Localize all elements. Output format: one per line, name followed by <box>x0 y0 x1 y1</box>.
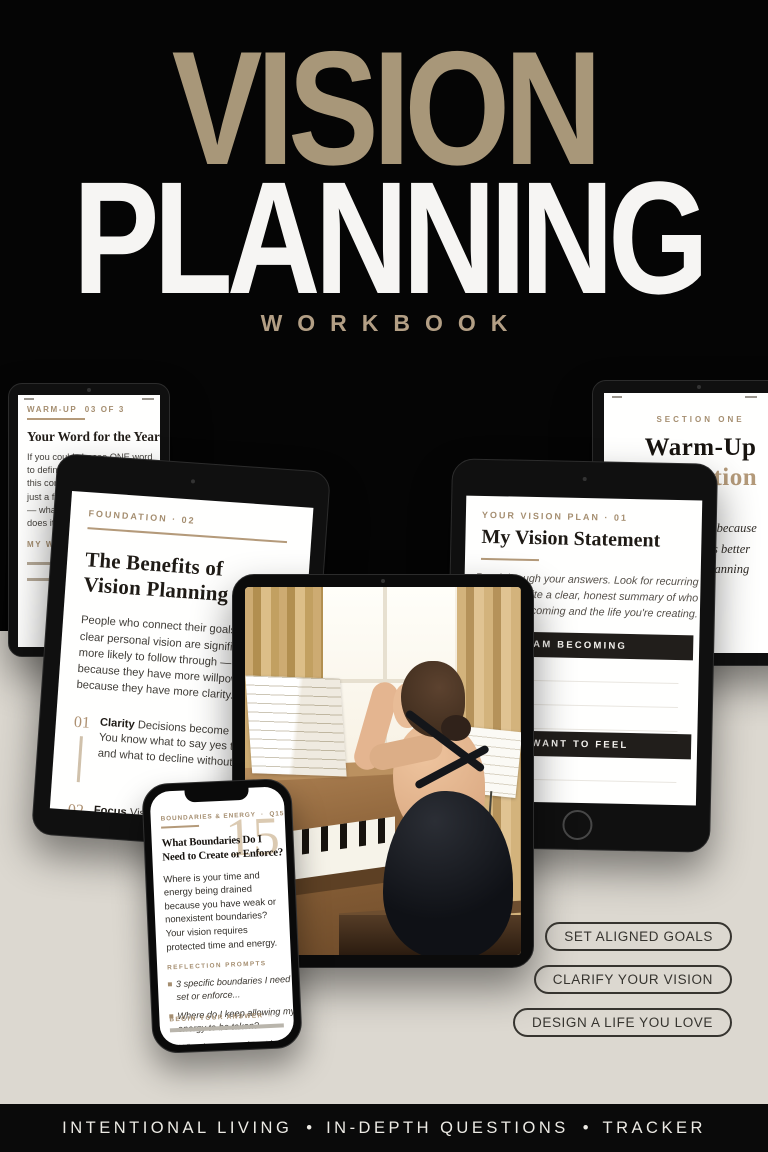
footer-segment: TRACKER <box>603 1119 706 1138</box>
bullet-separator: • <box>583 1119 589 1138</box>
camera-dot-icon <box>191 479 195 483</box>
status-bar <box>142 398 154 400</box>
eyebrow-underline <box>161 825 199 828</box>
prompt-text: What happens when I hold these boundarie… <box>178 1037 294 1046</box>
vision-heading: My Vision Statement <box>481 526 685 553</box>
section-eyebrow: SECTION ONE <box>604 415 768 424</box>
status-bar <box>24 398 34 400</box>
bullet-separator: • <box>306 1119 312 1138</box>
subtitle-workbook: WORKBOOK <box>0 310 768 337</box>
footer-segment: IN-DEPTH QUESTIONS <box>326 1119 569 1138</box>
phone-screen: 15 BOUNDARIES & ENERGY · Q15 OF 20 What … <box>150 786 295 1046</box>
photo-sheet-music <box>245 675 346 776</box>
square-bullet-icon <box>168 983 172 987</box>
camera-dot-icon <box>87 388 91 392</box>
footer-bar: INTENTIONAL LIVING • IN-DEPTH QUESTIONS … <box>0 1104 768 1152</box>
prompt-item: What happens when I hold these boundarie… <box>170 1037 287 1045</box>
vision-eyebrow: YOUR VISION PLAN · 01 <box>482 510 686 524</box>
title-planning: PLANNING <box>73 158 695 318</box>
camera-dot-icon <box>583 477 587 481</box>
benefit-lead: Clarity <box>100 716 136 730</box>
home-button <box>562 810 593 841</box>
reflection-prompts-label: REFLECTION PROMPTS <box>167 960 283 972</box>
status-bar <box>745 396 757 398</box>
heading-underline <box>481 558 539 561</box>
benefit-number: 01 <box>73 713 100 733</box>
benefit-pills: SET ALIGNED GOALS CLARIFY YOUR VISION DE… <box>513 922 732 1037</box>
phone-heading: What Boundaries Do I Need to Create or E… <box>161 831 278 864</box>
poster: VISION PLANNING WORKBOOK WARM-UP 03 OF 3… <box>0 0 768 1152</box>
benefit-divider <box>77 736 83 782</box>
prompt-item: 3 specific boundaries I need to set or e… <box>168 974 285 1004</box>
status-bar <box>612 396 622 398</box>
benefit-divider <box>71 823 77 825</box>
benefit-number: 02 <box>67 801 94 821</box>
camera-dot-icon <box>381 579 385 583</box>
pill-set-aligned-goals[interactable]: SET ALIGNED GOALS <box>545 922 732 951</box>
eyebrow-underline <box>27 418 85 420</box>
footer-segment: INTENTIONAL LIVING <box>62 1119 292 1138</box>
warmup-heading: Your Word for the Year <box>27 429 152 445</box>
section-title-dark: Warm-Up <box>604 434 768 462</box>
phone-notch <box>184 787 249 803</box>
phone-boundaries-question: 15 BOUNDARIES & ENERGY · Q15 OF 20 What … <box>141 778 303 1054</box>
pill-clarify-your-vision[interactable]: CLARIFY YOUR VISION <box>534 965 732 994</box>
camera-dot-icon <box>697 385 701 389</box>
warmup-eyebrow: WARM-UP 03 OF 3 <box>27 405 152 414</box>
prompt-text: 3 specific boundaries I need to set or e… <box>176 973 295 1003</box>
phone-body: Where is your time and energy being drai… <box>163 867 282 954</box>
pill-design-a-life-you-love[interactable]: DESIGN A LIFE YOU LOVE <box>513 1008 732 1037</box>
benefit-lead: Focus <box>93 804 127 818</box>
